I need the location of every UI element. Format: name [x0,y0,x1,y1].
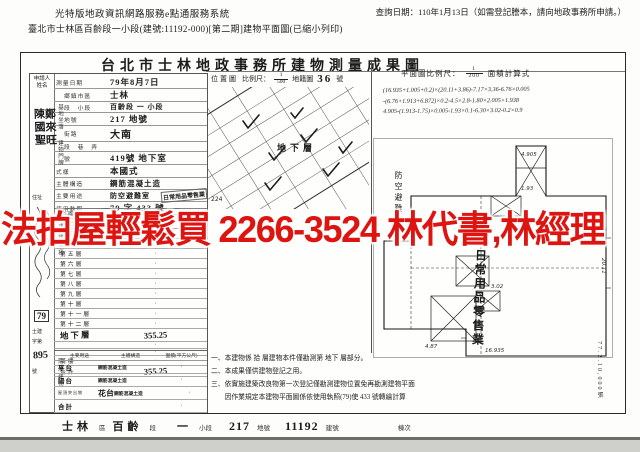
receipt-zi: 字第 [32,338,42,345]
table-row: 第九層· [54,289,207,299]
note-line: 三、依實施建築改良物第一次登記僅勘測建物位置免再勘測建物平面 [211,379,486,392]
note-line: 二、本成果僅供建物登記之用。 [211,366,486,379]
note-line: 因作業規定本建物平面圖係依使用執照(79)使 433 號轉繪計算 [211,392,486,405]
field-rows: 測量日期 79年8月7日 鄉鎮市區 士林 段 小段 百齡段 一 小段 地號 21… [54,76,207,208]
page-subtitle: 臺北市士林區百齡段一小段(建號:11192-000)[第二期]建物平面圖(已縮小… [28,22,343,35]
plan-scale-fraction: 1200 [466,67,483,79]
system-title: 光特版地政資訊網路服務e點通服務系統 [55,6,230,20]
table-row: 第六層· [54,259,207,269]
field-structure: 主體構造 鋼筋混凝土造 [54,178,207,190]
dim-label: 4.87 [425,344,438,350]
field-section: 段 小段 百齡段 一 小段 [54,102,207,113]
map-scale-label: 比例尺： [242,74,270,84]
table-row: · [54,342,207,349]
footer-district: 士林 [62,418,92,434]
map-scale-fraction: 1500 [274,73,288,85]
cadastral-sheet-label: 地籍圖 [292,74,313,84]
field-door-no: 號 419號 地下室 [54,152,207,165]
notes: 一、本建物係 拾 層建物本件僅勘測第 地下 層部分。 二、本成果僅供建物登記之用… [211,353,486,405]
cadastral-sheet-suffix: 號 [336,74,343,84]
table-row-total: 合計· [54,400,207,413]
receipt-number: 895 [33,349,49,361]
plan-header: 平面圖比例尺： 1200 面積計算式 [401,67,530,79]
retail-use-label: 日常用品零售業 [469,249,489,348]
dim-label: 3.02 [491,284,504,290]
table-row: 第八層· [54,279,207,289]
footer-building-no: 11192 [285,419,319,434]
table-row: 第七層· [54,269,207,279]
dim-label: 16.935 [485,348,505,354]
table-row: 第十一層· [54,309,207,319]
query-date: 查詢日期：110年1月13日（如需登記謄本，請向地政事務所申請。） [376,6,626,20]
area-calculation: (16.935+1.005+0.2)×(20.11+3.86)-7.17×3.3… [383,84,635,118]
dim-label: 1.93 [521,186,534,192]
field-street: 街路 大南 [54,126,207,142]
document-footer: 士林 區 百齡 段 一 小段 217 地號 11192 建號 棟次 [62,418,411,434]
table-row: 陽台鋼筋混凝土造· [54,374,207,387]
note-line: 一、本建物係 拾 層建物本件僅勘測第 地下 層部分。 [211,353,486,366]
table-row: 第十層· [54,299,207,309]
plan-scale-label: 平面圖比例尺： [401,68,461,79]
receipt-year-stamp: 79 [34,310,49,322]
footer-unit-label: 棟次 [398,422,411,432]
applicant-label: 申請人姓名 [30,76,54,89]
scan-edge-band [0,440,640,452]
page-header: 光特版地政資訊網路服務e點通服務系統 查詢日期：110年1月13日（如需登記謄本… [0,6,640,20]
formula-line: 4.905-(1.913-1.75)×0.005-1.93×0.1-6.30×3… [383,105,635,118]
form-print-code: 77.2.10,000張 [595,341,604,400]
field-lane: 段 巷 弄 [54,142,207,152]
door-group-label: 建物門牌 [56,140,64,166]
annex-table: 主要用途 主體構造 面積(平方公尺) 平台鋼筋混凝土造· 陽台鋼筋混凝土造· 屋… [54,350,207,413]
annex-header: 主要用途 主體構造 面積(平方公尺) [54,351,207,361]
dim-label: 20.11 [600,258,606,274]
area-calc-label: 面積計算式 [488,68,531,79]
table-row-basement: 地下層355.25 [54,329,207,342]
footer-lot: 217 [229,419,250,434]
page: 光特版地政資訊網路服務e點通服務系統 查詢日期：110年1月13日（如需登記謄本… [0,0,640,452]
handwritten-flower-bed: 花台 [98,387,115,399]
plan-basement-label: 地下層 [277,141,316,154]
location-map-label: 位置圖 [211,74,238,84]
field-district: 鄉鎮市區 士林 [54,89,207,102]
footer-subsection: 一 [177,418,192,434]
dim-label: 4.905 [521,152,537,158]
field-survey-date: 測量日期 79年8月7日 [54,76,207,89]
location-map-header: 位置圖 比例尺： 1500 地籍圖 36 號 [211,73,343,85]
table-row: 平台鋼筋混凝土造· [54,361,207,374]
watermark-ad: 法拍屋輕鬆買 2266-3524 林代書,林經理 [1,199,628,253]
field-lot: 地號 217 地號 [54,113,207,126]
table-row: 屋頂突出物 花台 鋼筋混凝土造 · [54,387,207,400]
cadastral-sheet-number: 36 [317,73,332,85]
field-style: 式樣 本國式 [54,165,207,178]
receipt-suffix: 號 [32,368,37,375]
document-title: 台北市士林地政事務所建物測量成果圖 [101,55,424,75]
receipt-prefix: 士建 [32,328,42,335]
site-group-label: 基地坐落 [56,104,64,130]
footer-section: 百齡 [113,418,143,434]
